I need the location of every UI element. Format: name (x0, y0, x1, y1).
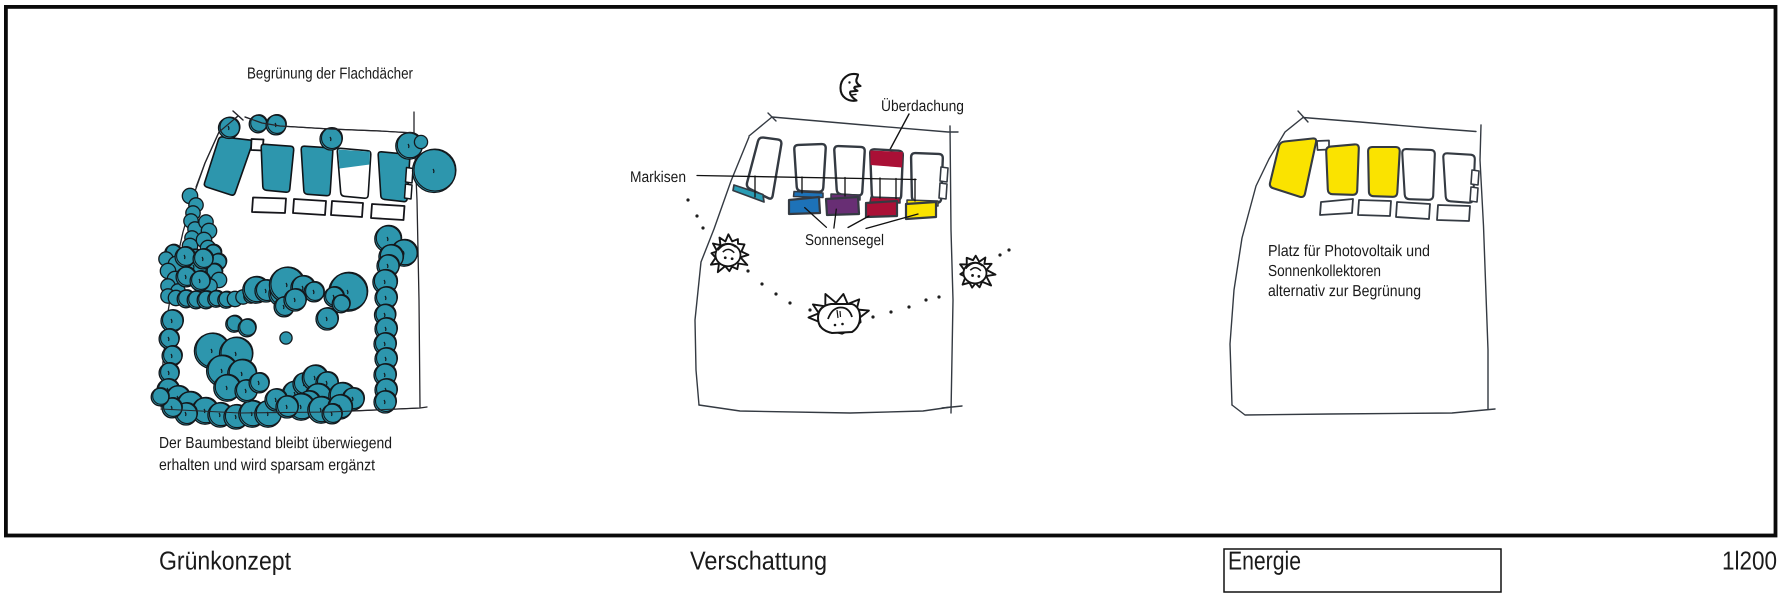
svg-text:Markisen: Markisen (630, 169, 686, 186)
svg-text:erhalten und wird sparsam ergä: erhalten und wird sparsam ergänzt (159, 457, 375, 474)
svg-text:alternativ zur Begrünung: alternativ zur Begrünung (1268, 283, 1421, 300)
svg-text:Platz für Photovoltaik und: Platz für Photovoltaik und (1268, 243, 1430, 260)
svg-text:Sonnensegel: Sonnensegel (805, 232, 884, 249)
svg-text:Überdachung: Überdachung (881, 98, 964, 115)
svg-text:Der Baumbestand bleibt überwie: Der Baumbestand bleibt überwiegend (159, 435, 392, 452)
svg-text:1l200: 1l200 (1722, 546, 1777, 576)
svg-text:Grünkonzept: Grünkonzept (159, 546, 292, 576)
svg-text:Begrünung der Flachdächer: Begrünung der Flachdächer (247, 66, 414, 83)
svg-text:Verschattung: Verschattung (690, 546, 827, 576)
svg-text:Sonnenkollektoren: Sonnenkollektoren (1268, 263, 1381, 280)
svg-text:Energie: Energie (1228, 546, 1301, 576)
